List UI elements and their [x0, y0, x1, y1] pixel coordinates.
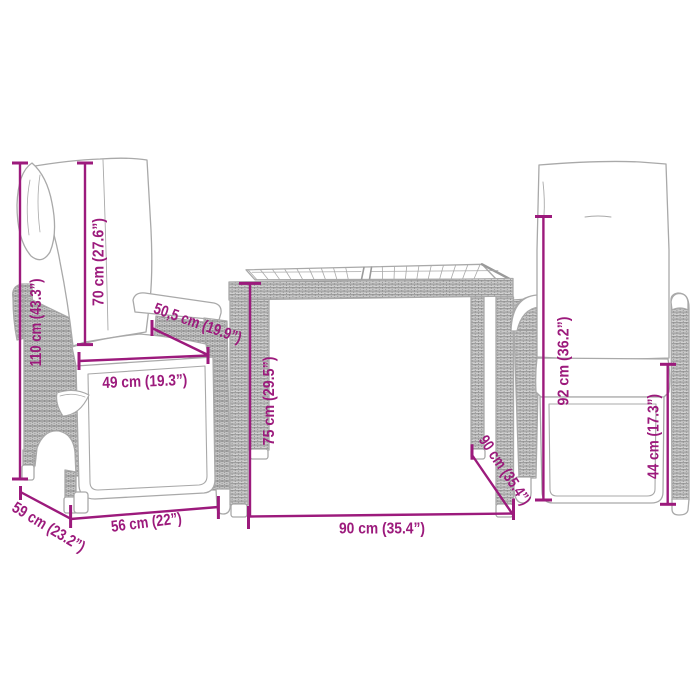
svg-text:70 cm (27.6”): 70 cm (27.6”) [91, 218, 108, 306]
svg-text:90 cm (35.4”): 90 cm (35.4”) [339, 521, 425, 538]
svg-text:110 cm (43.3”): 110 cm (43.3”) [28, 279, 45, 367]
svg-text:49 cm (19.3”): 49 cm (19.3”) [102, 372, 188, 392]
svg-text:75 cm (29.5”): 75 cm (29.5”) [261, 357, 278, 446]
svg-text:92 cm (36.2”): 92 cm (36.2”) [556, 317, 573, 406]
svg-text:44 cm (17.3”): 44 cm (17.3”) [646, 394, 663, 479]
